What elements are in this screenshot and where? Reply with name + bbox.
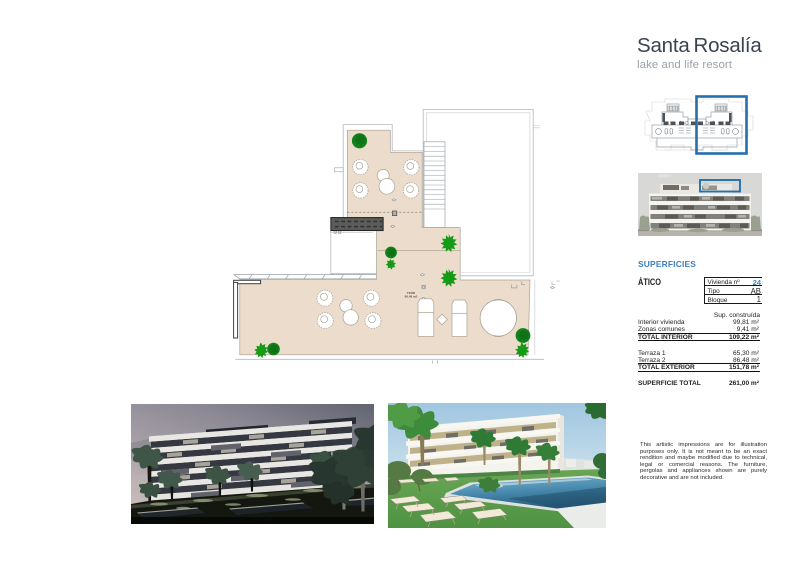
svg-text:86,48 m2: 86,48 m2 (405, 295, 418, 299)
